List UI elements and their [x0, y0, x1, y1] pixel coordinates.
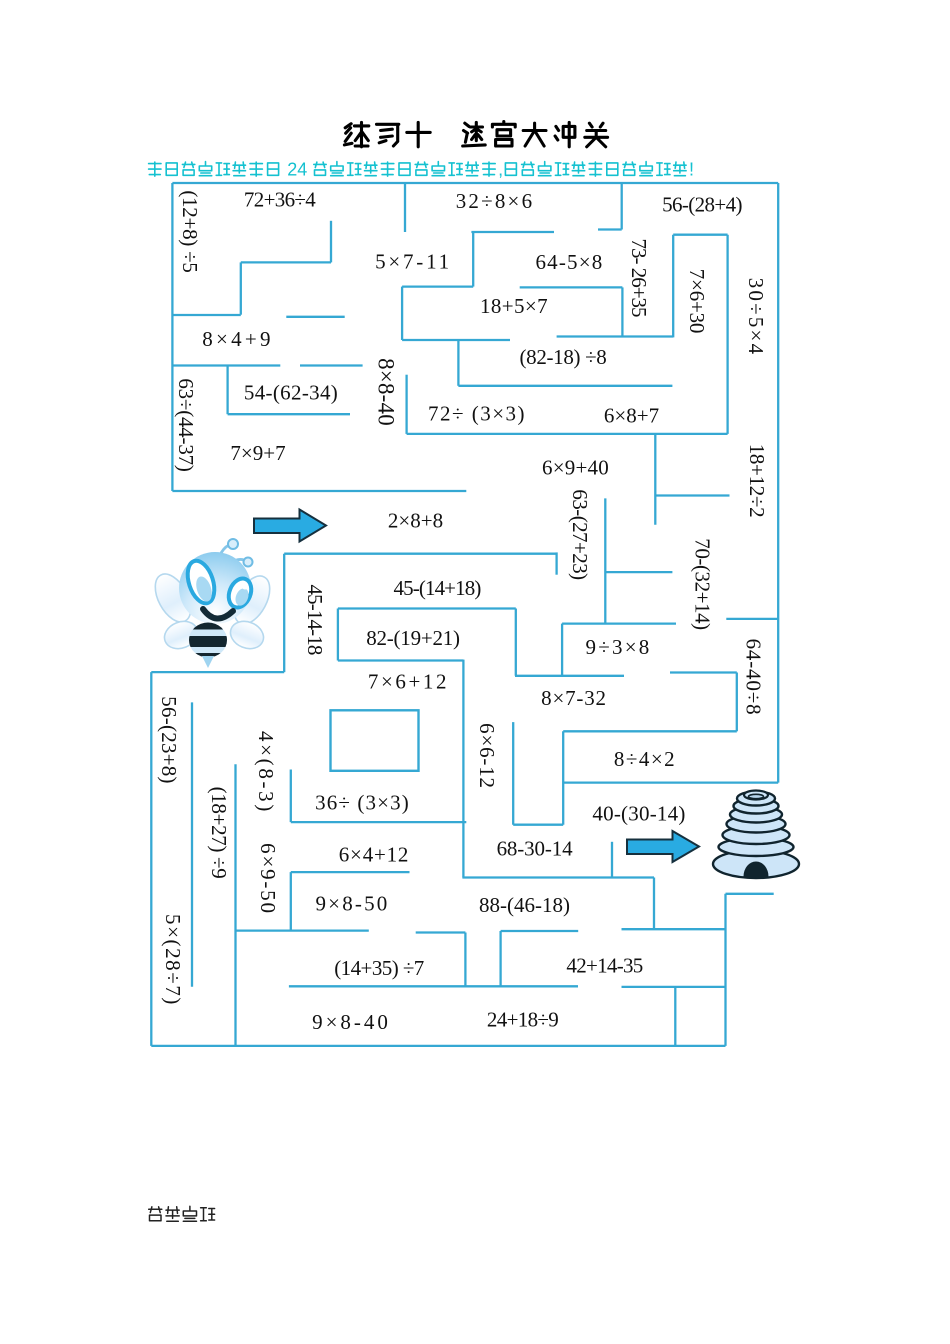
svg-text:42+14-35: 42+14-35 — [566, 954, 642, 978]
svg-text:6×4+12: 6×4+12 — [339, 843, 410, 867]
svg-text:6×6-12: 6×6-12 — [475, 723, 499, 789]
svg-text:45-(14+18): 45-(14+18) — [394, 576, 482, 600]
svg-text:4×(8-3): 4×(8-3) — [254, 731, 278, 814]
svg-text:5×(28÷7): 5×(28÷7) — [161, 914, 185, 1006]
svg-text:63-(27+23): 63-(27+23) — [568, 489, 592, 580]
svg-text:7×9+7: 7×9+7 — [230, 441, 285, 465]
svg-text:7×6+12: 7×6+12 — [368, 670, 449, 694]
svg-text:73- 26+35: 73- 26+35 — [627, 238, 651, 317]
svg-text:54-(62-34): 54-(62-34) — [244, 381, 338, 405]
svg-text:8×7-32: 8×7-32 — [541, 686, 607, 710]
svg-text:68-30-14: 68-30-14 — [497, 837, 574, 861]
svg-text:,: , — [498, 160, 503, 180]
svg-text:82-(19+21): 82-(19+21) — [366, 626, 460, 650]
svg-text:8÷4×2: 8÷4×2 — [614, 747, 676, 771]
svg-text:64-5×8: 64-5×8 — [535, 250, 603, 274]
svg-text:8×4+9: 8×4+9 — [202, 327, 273, 351]
svg-text:(82-18) ÷8: (82-18) ÷8 — [520, 345, 607, 369]
svg-text:9×8-40: 9×8-40 — [312, 1010, 391, 1034]
svg-text:64-40÷8: 64-40÷8 — [742, 639, 766, 716]
svg-text:(18+27) ÷9: (18+27) ÷9 — [207, 787, 231, 879]
svg-text:72+36÷4: 72+36÷4 — [244, 188, 316, 212]
svg-text:40-(30-14): 40-(30-14) — [592, 802, 685, 826]
svg-text:24+18÷9: 24+18÷9 — [487, 1008, 558, 1032]
svg-text:88-(46-18): 88-(46-18) — [479, 893, 570, 917]
svg-text:9÷3×8: 9÷3×8 — [585, 635, 651, 659]
svg-text:32÷8×6: 32÷8×6 — [456, 189, 535, 213]
svg-text:2: 2 — [287, 160, 297, 180]
svg-text:(12+8) ÷5: (12+8) ÷5 — [178, 190, 202, 272]
svg-text:5×7-11: 5×7-11 — [375, 250, 452, 274]
svg-text:!: ! — [689, 160, 694, 180]
svg-text:6×9-50: 6×9-50 — [256, 843, 280, 915]
svg-text:6×8+7: 6×8+7 — [604, 404, 659, 428]
svg-text:56-(23+8): 56-(23+8) — [157, 696, 181, 784]
svg-text:56-(28+4): 56-(28+4) — [662, 193, 742, 217]
svg-text:30÷5×4: 30÷5×4 — [744, 278, 768, 357]
svg-text:2×8+8: 2×8+8 — [388, 509, 443, 533]
svg-text:18+5×7: 18+5×7 — [480, 294, 548, 318]
svg-text:36÷ (3×3): 36÷ (3×3) — [315, 791, 410, 815]
svg-text:9×8-50: 9×8-50 — [315, 892, 389, 916]
svg-text:8×8-40: 8×8-40 — [374, 358, 399, 426]
svg-text:18+12÷2: 18+12÷2 — [745, 444, 769, 518]
svg-text:63÷(44-37): 63÷(44-37) — [174, 378, 198, 472]
svg-text:70-(32+14): 70-(32+14) — [691, 538, 715, 630]
svg-text:72÷ (3×3): 72÷ (3×3) — [428, 402, 526, 426]
svg-text:4: 4 — [297, 160, 307, 180]
svg-text:45-14-18: 45-14-18 — [303, 584, 327, 654]
svg-text:7×6+30: 7×6+30 — [685, 269, 709, 334]
svg-text:(14+35) ÷7: (14+35) ÷7 — [334, 956, 424, 980]
svg-text:6×9+40: 6×9+40 — [542, 456, 609, 480]
